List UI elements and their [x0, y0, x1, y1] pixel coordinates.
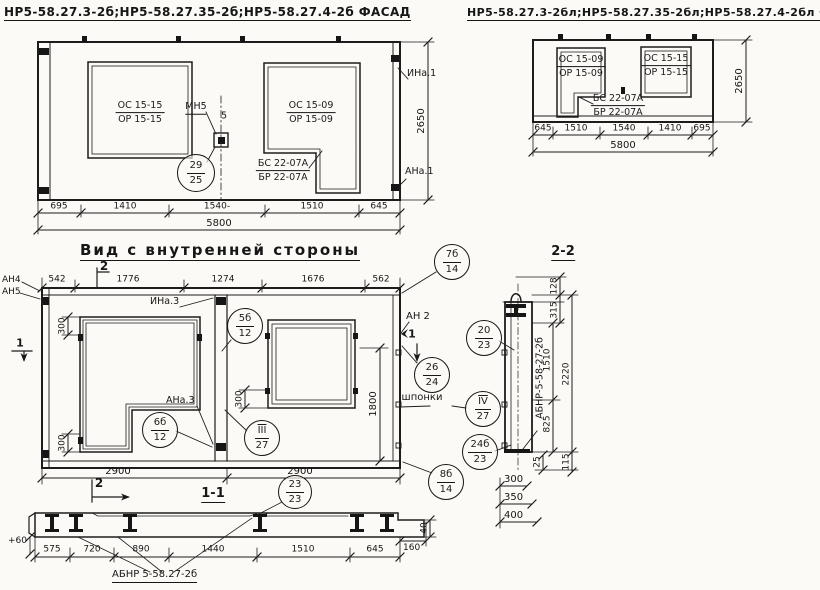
callout-8b-14: 8б 14 [428, 464, 464, 500]
dim-1510-sec: 1510 [544, 349, 553, 372]
mark-ana1: АНа.1 [405, 167, 434, 177]
lintel-label-left: БС 22-07А БР 22-07А [256, 158, 310, 184]
mark-ina3: ИНа.3 [150, 297, 179, 307]
callout-5b-12: 5б 12 [227, 308, 263, 344]
dim-plus60: +60 [8, 537, 27, 546]
callout-6b-12: 6б 12 [142, 412, 178, 448]
drawing-linework [0, 0, 820, 590]
cut-mark-2-bottom: 2 [95, 477, 103, 489]
title-facade-right: НР5-58.27.3-2бл;НР5-58.27.35-2бл;НР5-58.… [467, 7, 820, 21]
label-abnr-plan: АБНР 5-58.27-2б [112, 570, 197, 583]
label-keys: шпонки [402, 393, 443, 403]
mark-an5: АН5 [2, 288, 21, 297]
dim-2650-left: 2650 [417, 108, 427, 133]
window-label-15-15: ОС 15-15 ОР 15-15 [116, 100, 165, 126]
dim-2220: 2220 [563, 363, 572, 386]
title-section-2-2: 2-2 [551, 245, 575, 261]
dim-1510: 1510 [301, 203, 324, 212]
dim-300-sec: 300 [504, 475, 523, 485]
dim-2650-right: 2650 [735, 68, 745, 93]
dim-300-top: 300 [59, 317, 68, 334]
dim-1540-r: 1540 [613, 125, 636, 134]
dim-128: 128 [551, 277, 560, 294]
cut-mark-1-right: 1 [408, 329, 416, 340]
mark-an2: АН 2 [406, 312, 430, 322]
dim-300-window: 300 [236, 390, 245, 407]
mark-an4: АН4 [2, 276, 21, 285]
dim-1440: 1440 [202, 546, 225, 555]
dim-160: 160 [403, 544, 420, 553]
callout-20-23: 20 23 [466, 320, 502, 356]
dim-1540: 1540- [204, 203, 230, 212]
title-section-1-1: 1-1 [201, 487, 225, 503]
dim-825: 825 [544, 415, 553, 432]
callout-iii-27: III 27 [244, 420, 280, 456]
dim-5800-right: 5800 [610, 141, 635, 151]
dim-1410-r: 1410 [659, 125, 682, 134]
dim-400-sec: 400 [504, 511, 523, 521]
title-inner-view: Вид с внутренней стороны [80, 243, 360, 261]
lintel-label-right: БС 22-07А БР 22-07А [591, 93, 645, 119]
dim-1274: 1274 [212, 276, 235, 285]
dim-25: 25 [534, 456, 543, 467]
dim-350-sec: 350 [504, 493, 523, 503]
dim-645-plan: 645 [366, 546, 383, 555]
dim-315: 315 [551, 301, 560, 318]
dim-1410: 1410 [114, 203, 137, 212]
mark-5: 5 [221, 111, 227, 121]
title-facade-left: НР5-58.27.3-2б;НР5-58.27.35-2б;НР5-58.27… [4, 6, 411, 21]
drawing-sheet: НР5-58.27.3-2б;НР5-58.27.35-2б;НР5-58.27… [0, 0, 820, 590]
mark-ana3: АНа.3 [166, 396, 195, 406]
dim-695-r: 695 [693, 125, 710, 134]
dim-695: 695 [50, 203, 67, 212]
dim-542: 542 [48, 276, 65, 285]
window-label-right-15-09: ОС 15-09 ОР 15-09 [557, 54, 606, 80]
dim-1800: 1800 [369, 391, 379, 416]
callout-7b-14: 7б 14 [434, 244, 470, 280]
dim-720: 720 [83, 546, 100, 555]
callout-26-24: 26 24 [414, 357, 450, 393]
mark-ina1: ИНа.1 [407, 69, 436, 79]
dim-1510-plan: 1510 [292, 546, 315, 555]
dim-1676: 1676 [302, 276, 325, 285]
dim-2900-a: 2900 [105, 467, 130, 477]
dim-5800-left: 5800 [206, 219, 231, 229]
callout-23-23: 23 23 [278, 475, 312, 509]
dim-300-bottom: 300 [59, 434, 68, 451]
mark-mn5: МН5 [185, 102, 206, 115]
callout-24b-23: 24б 23 [462, 434, 498, 470]
dim-645-r: 645 [534, 125, 551, 134]
dim-575: 575 [43, 546, 60, 555]
dim-645: 645 [370, 203, 387, 212]
dim-40: 40 [421, 522, 430, 533]
window-label-right-15-15: ОС 15-15 ОР 15-15 [642, 53, 691, 79]
callout-29-25: 29 25 [177, 154, 215, 192]
window-label-15-09: ОС 15-09 ОР 15-09 [287, 100, 336, 126]
dim-115: 115 [563, 453, 572, 470]
callout-iv-27: IV 27 [465, 391, 501, 427]
dim-1776: 1776 [117, 276, 140, 285]
dim-890: 890 [132, 546, 149, 555]
cut-mark-1-left: 1 [16, 338, 24, 349]
cut-mark-2-top: 2 [100, 260, 108, 272]
plan-1-1-linework [26, 480, 436, 572]
dim-562: 562 [372, 276, 389, 285]
dim-1510-r: 1510 [565, 125, 588, 134]
